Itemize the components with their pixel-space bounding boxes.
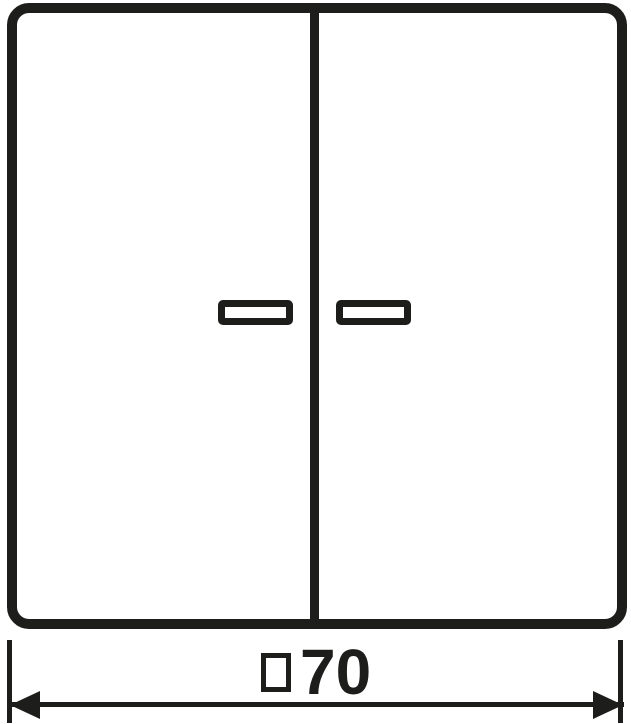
dimension-drawing: 70 <box>0 0 631 724</box>
square-dimension-symbol-icon <box>261 653 291 692</box>
dimension-value: 70 <box>300 640 371 704</box>
dimension-arrow-left-icon <box>10 691 40 719</box>
left-indicator-window <box>218 300 293 325</box>
dimension-arrow-right-icon <box>593 691 623 719</box>
rocker-divider-line <box>310 13 319 619</box>
switch-plate-outline <box>7 3 627 629</box>
right-indicator-window <box>336 300 411 325</box>
